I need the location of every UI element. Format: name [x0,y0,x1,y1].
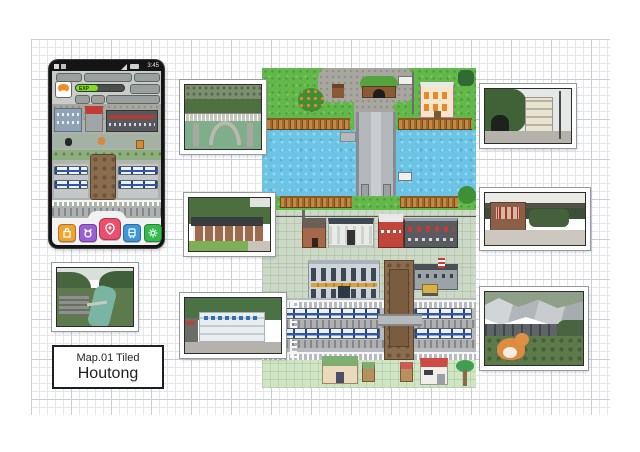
clock: 3:45 [147,63,159,70]
mini-picket [52,200,161,206]
arch-row [311,268,377,281]
dock [340,132,356,142]
brick-sign-image [484,192,586,246]
ruin-core [389,269,409,347]
white-dashes [408,238,454,241]
cat-bridge-image [484,291,584,366]
orange-cat-sprite [98,137,105,145]
exp-bar: EXP [75,84,125,92]
sky [250,198,270,207]
fruit-tree [298,88,324,112]
red-roof-house [420,358,448,385]
paw-map-button [99,218,121,240]
street [185,342,281,353]
mini-train [118,166,158,175]
map-number-label: Map.01 Tiled [77,352,140,364]
train [414,308,472,319]
river-valley-image [56,267,134,327]
garage-door [437,374,445,384]
visitor-center-image [188,197,271,252]
hud-pill [75,95,90,104]
game-hud: EXP [52,71,161,104]
battery-icon [130,64,139,69]
phone-mockup: 3:45 EXP [49,60,164,248]
window-row [424,92,451,99]
white-dashes [109,123,155,126]
bridge-pier [193,123,199,147]
photo-cat-bridge [480,287,588,370]
photo-river-valley [52,263,138,331]
gear-icon [147,227,159,239]
phone-nav-bar [52,218,161,245]
sim-icon [61,64,66,69]
cat-head [515,333,529,346]
mini-train [54,166,88,175]
houtong-tiled-map [262,68,476,388]
red-windows [408,226,454,232]
tunnel-road-image [484,88,572,144]
cream-building [420,82,454,118]
entrance [347,230,355,245]
wood-fence [280,196,352,208]
picket-fence [412,300,476,308]
signal-icon [121,64,127,70]
mine-tunnel-icon [373,89,385,98]
bag-icon [61,227,73,239]
bridge-deck [185,113,261,121]
design-sheet: 3:45 EXP [0,0,640,452]
cat-button [79,224,97,242]
photo-brick-sign [480,188,590,250]
cat-avatar [55,81,72,98]
bridge [356,112,396,208]
coal-plant-ruin [384,260,414,360]
cat-chest [503,347,517,358]
window-row [424,104,451,111]
paw-pin-icon [103,222,117,236]
hud-pill [130,84,160,94]
red-factory [378,214,404,248]
train-icon [126,227,138,239]
station-image [184,297,282,354]
dark-tree [458,70,474,86]
colonnade-building [328,218,374,248]
brick-building [490,202,526,231]
power-line [262,216,476,217]
title-box: Map.01 Tiled Houtong [52,345,164,389]
brick-house [302,218,326,248]
door [336,372,344,383]
photo-visitor-center [184,193,275,256]
bush [458,186,476,204]
settings-button [144,224,162,242]
door [312,238,318,247]
avatar-muzzle [60,90,67,96]
steps [329,245,373,248]
bench [136,140,144,149]
awning [185,321,195,325]
cat-icon [82,227,94,239]
train-button [123,224,141,242]
window [424,370,433,375]
bridge-walkway [371,112,381,208]
arch-bridge-image [184,84,262,150]
window-band [57,113,79,116]
window-band [381,230,401,233]
photo-arch-bridge [180,80,266,154]
utility-pole [559,91,561,139]
window-band [57,121,79,124]
bag-button [58,224,76,242]
red-hut [400,362,413,382]
red-band [109,115,155,119]
blue-signage [204,316,260,320]
wood-fence [398,118,472,130]
yellow-digger [422,284,438,296]
wood-fence [266,118,350,130]
ruin-walkway [378,314,422,326]
plaza-road [485,230,585,246]
black-cat-sprite [65,138,72,146]
window-band [418,274,454,278]
train [414,328,472,339]
red-character-sign [495,206,521,220]
station-building [199,312,265,342]
shrine-stand [332,84,344,98]
mini-train [118,180,158,189]
map-name-label: Houtong [78,365,139,383]
utility-pole [412,72,414,114]
arched-hall [308,260,380,300]
striped-pole [438,258,445,268]
bridge-pier [247,123,253,147]
river-sign [398,172,412,181]
mini-train [54,180,88,189]
message-icon [54,64,59,69]
white-building [525,97,553,133]
hud-pill [91,95,105,104]
trees [529,209,569,227]
mini-factory [106,110,158,132]
exp-label: EXP [79,86,89,92]
palm-trunk [463,370,467,386]
hud-pill [84,73,132,82]
green-roof-house [322,356,358,384]
green-hut [362,362,375,382]
mini-crane [85,106,103,132]
brick-facade [193,226,263,242]
village-rooftops [59,294,89,316]
game-viewport [52,104,161,218]
mini-building [54,108,82,132]
door [434,111,441,118]
dark-roof [191,217,263,226]
mini-cliff [90,154,116,200]
dark-factory [404,218,458,248]
hud-pill [106,95,160,104]
photo-station [180,293,286,358]
photo-tunnel-road [480,84,576,148]
path [248,241,270,251]
status-bar: 3:45 [52,62,161,71]
hud-pill [134,73,160,82]
wood-fence [400,196,458,208]
